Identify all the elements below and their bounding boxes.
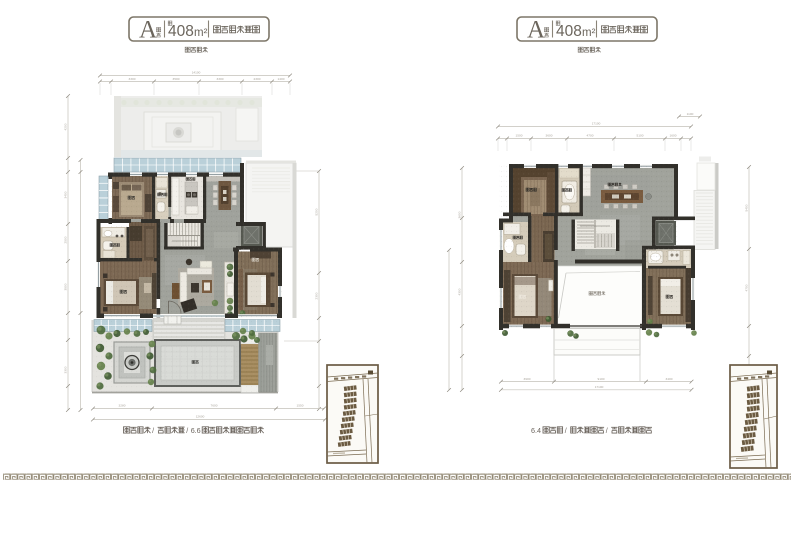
- svg-text:6.6: 6.6: [191, 426, 201, 435]
- svg-text:3280: 3280: [119, 404, 126, 408]
- svg-text:A: A: [139, 17, 157, 44]
- svg-text:4300: 4300: [458, 288, 462, 295]
- svg-text:/: /: [606, 428, 608, 435]
- svg-text:3500: 3500: [173, 77, 180, 81]
- svg-text:3400: 3400: [666, 377, 673, 381]
- svg-text:4700: 4700: [587, 134, 594, 138]
- svg-text:A: A: [527, 17, 545, 44]
- svg-text:3600: 3600: [546, 134, 553, 138]
- svg-text:1100: 1100: [687, 112, 694, 116]
- svg-text:408: 408: [556, 23, 582, 40]
- svg-text:4700: 4700: [745, 284, 749, 291]
- svg-text:3300: 3300: [64, 366, 68, 373]
- svg-text:2500: 2500: [64, 236, 68, 243]
- svg-text:6.4: 6.4: [531, 426, 541, 435]
- svg-text:14100: 14100: [192, 71, 201, 75]
- svg-text:3600: 3600: [458, 211, 462, 218]
- svg-text:408: 408: [168, 23, 194, 40]
- svg-text:12600: 12600: [196, 415, 205, 419]
- svg-text:/: /: [565, 428, 567, 435]
- svg-text:2300: 2300: [254, 77, 261, 81]
- svg-text:1600: 1600: [670, 134, 677, 138]
- svg-text:3300: 3300: [129, 77, 136, 81]
- svg-text:7600: 7600: [211, 404, 218, 408]
- svg-text:5200: 5200: [315, 208, 319, 215]
- svg-text:1400: 1400: [278, 77, 285, 81]
- svg-text:9100: 9100: [598, 377, 605, 381]
- svg-text:1500: 1500: [516, 134, 523, 138]
- svg-text:3900: 3900: [524, 377, 531, 381]
- svg-text:4200: 4200: [64, 123, 68, 130]
- svg-text:m²: m²: [194, 27, 208, 39]
- svg-text:3300: 3300: [217, 77, 224, 81]
- svg-text:17100: 17100: [592, 122, 601, 126]
- svg-text:5100: 5100: [637, 134, 644, 138]
- svg-text:17100: 17100: [595, 385, 604, 389]
- svg-text:3500: 3500: [64, 283, 68, 290]
- svg-text:/: /: [152, 428, 154, 435]
- svg-text:5400: 5400: [745, 204, 749, 211]
- svg-text:m²: m²: [582, 27, 596, 39]
- svg-text:1550: 1550: [297, 404, 304, 408]
- svg-text:3400: 3400: [64, 191, 68, 198]
- svg-text:2300: 2300: [315, 292, 319, 299]
- svg-text:/: /: [186, 428, 188, 435]
